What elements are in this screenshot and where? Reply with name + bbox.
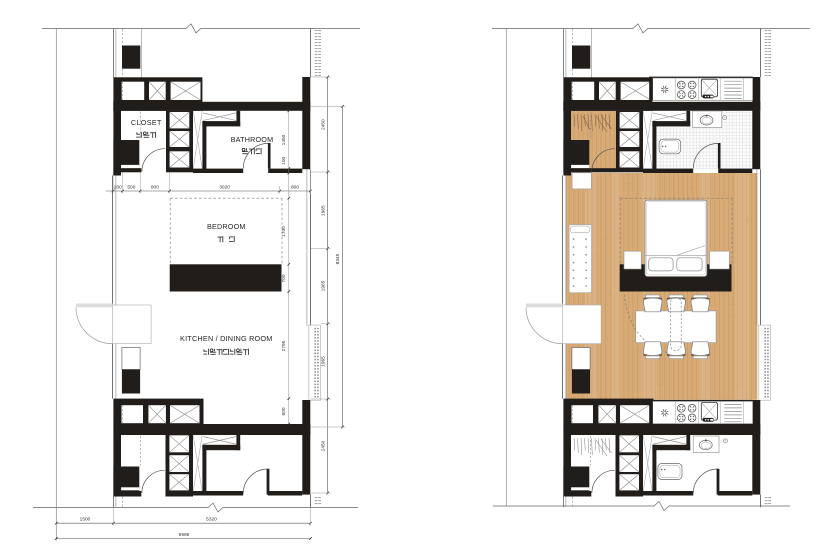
svg-text:1965: 1965 bbox=[320, 205, 326, 216]
svg-text:1965: 1965 bbox=[320, 280, 326, 291]
svg-text:1700: 1700 bbox=[281, 226, 287, 237]
svg-text:600: 600 bbox=[281, 407, 287, 415]
svg-text:1450: 1450 bbox=[281, 134, 287, 145]
svg-text:BATHROOM: BATHROOM bbox=[231, 135, 274, 144]
svg-text:3020: 3020 bbox=[219, 184, 230, 190]
svg-text:200: 200 bbox=[114, 184, 122, 190]
svg-text:700: 700 bbox=[281, 274, 287, 282]
svg-text:6996: 6996 bbox=[179, 532, 190, 538]
svg-text:500: 500 bbox=[127, 184, 135, 190]
svg-text:1500: 1500 bbox=[80, 517, 91, 523]
svg-text:1965: 1965 bbox=[320, 356, 326, 367]
svg-text:2450: 2450 bbox=[320, 119, 326, 130]
svg-text:BEDROOM: BEDROOM bbox=[207, 222, 246, 231]
svg-text:5320: 5320 bbox=[206, 517, 217, 523]
svg-text:100: 100 bbox=[281, 156, 287, 164]
svg-text:2450: 2450 bbox=[320, 440, 326, 451]
svg-text:800: 800 bbox=[291, 184, 299, 190]
svg-text:8345: 8345 bbox=[335, 253, 341, 264]
svg-text:800: 800 bbox=[151, 184, 159, 190]
svg-text:CLOSET: CLOSET bbox=[131, 118, 162, 127]
svg-text:2795: 2795 bbox=[281, 340, 287, 351]
svg-text:KITCHEN / DINING ROOM: KITCHEN / DINING ROOM bbox=[180, 334, 273, 343]
